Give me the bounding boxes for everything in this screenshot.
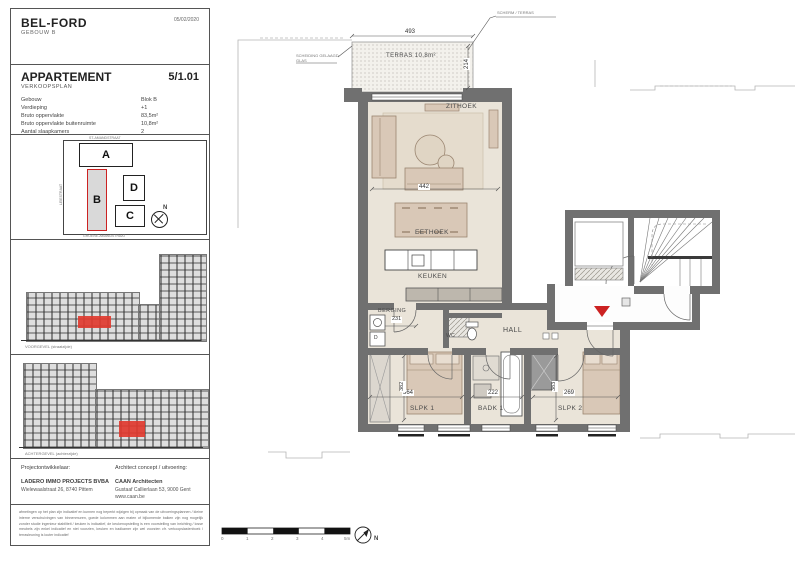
north-compass-icon: [355, 527, 371, 543]
dim-slpk1-depth: 382: [400, 381, 406, 392]
note-left-line2: GLAS: [296, 58, 307, 63]
dim-berging-width: 231: [391, 317, 402, 323]
note-top: SCHERM / TERRAS: [497, 10, 534, 15]
floorplan-drawing: [0, 0, 800, 571]
corridor-column: [622, 298, 630, 306]
dim-living-width: 442: [418, 184, 430, 190]
room-label-terras: TERRAS 10,8m²: [386, 53, 436, 59]
room-label-hall: HALL: [503, 327, 522, 334]
scale-tick-5: 5m: [344, 536, 350, 541]
scale-bar: [222, 528, 350, 534]
room-label-wc: WC: [446, 334, 455, 339]
room-label-zithoek: ZITHOEK: [446, 104, 477, 111]
mailbox-strip: [575, 268, 623, 280]
dim-slpk2-width: 269: [563, 390, 575, 396]
dim-slpk2-depth: 383: [552, 381, 558, 392]
dim-badk1-width: 222: [487, 390, 499, 396]
terrace-floor: [352, 42, 473, 92]
room-label-badk1: BADK 1: [478, 406, 504, 413]
room-label-slpk2: SLPK 2: [558, 406, 582, 413]
scale-tick-4: 4: [321, 536, 324, 541]
dim-terras-depth: 214: [464, 58, 470, 70]
scale-tick-1: 1: [246, 536, 249, 541]
living-furniture: [372, 104, 498, 190]
room-label-keuken: KEUKEN: [418, 274, 447, 281]
plan-north-label: N: [374, 536, 378, 542]
plan-sheet: BEL-FORD GEBOUW B 05/02/2020 APPARTEMENT…: [0, 0, 800, 571]
dim-terras-width: 493: [404, 29, 416, 35]
scale-tick-0: 0: [221, 536, 224, 541]
dryer-label: D: [374, 335, 378, 341]
room-label-berging: BERGING: [378, 309, 406, 315]
scale-tick-2: 2: [271, 536, 274, 541]
scale-tick-3: 3: [296, 536, 299, 541]
elevator-shaft: [575, 222, 623, 266]
room-label-slpk1: SLPK 1: [410, 406, 434, 413]
room-label-eethoek: EETHOEK: [415, 230, 449, 237]
